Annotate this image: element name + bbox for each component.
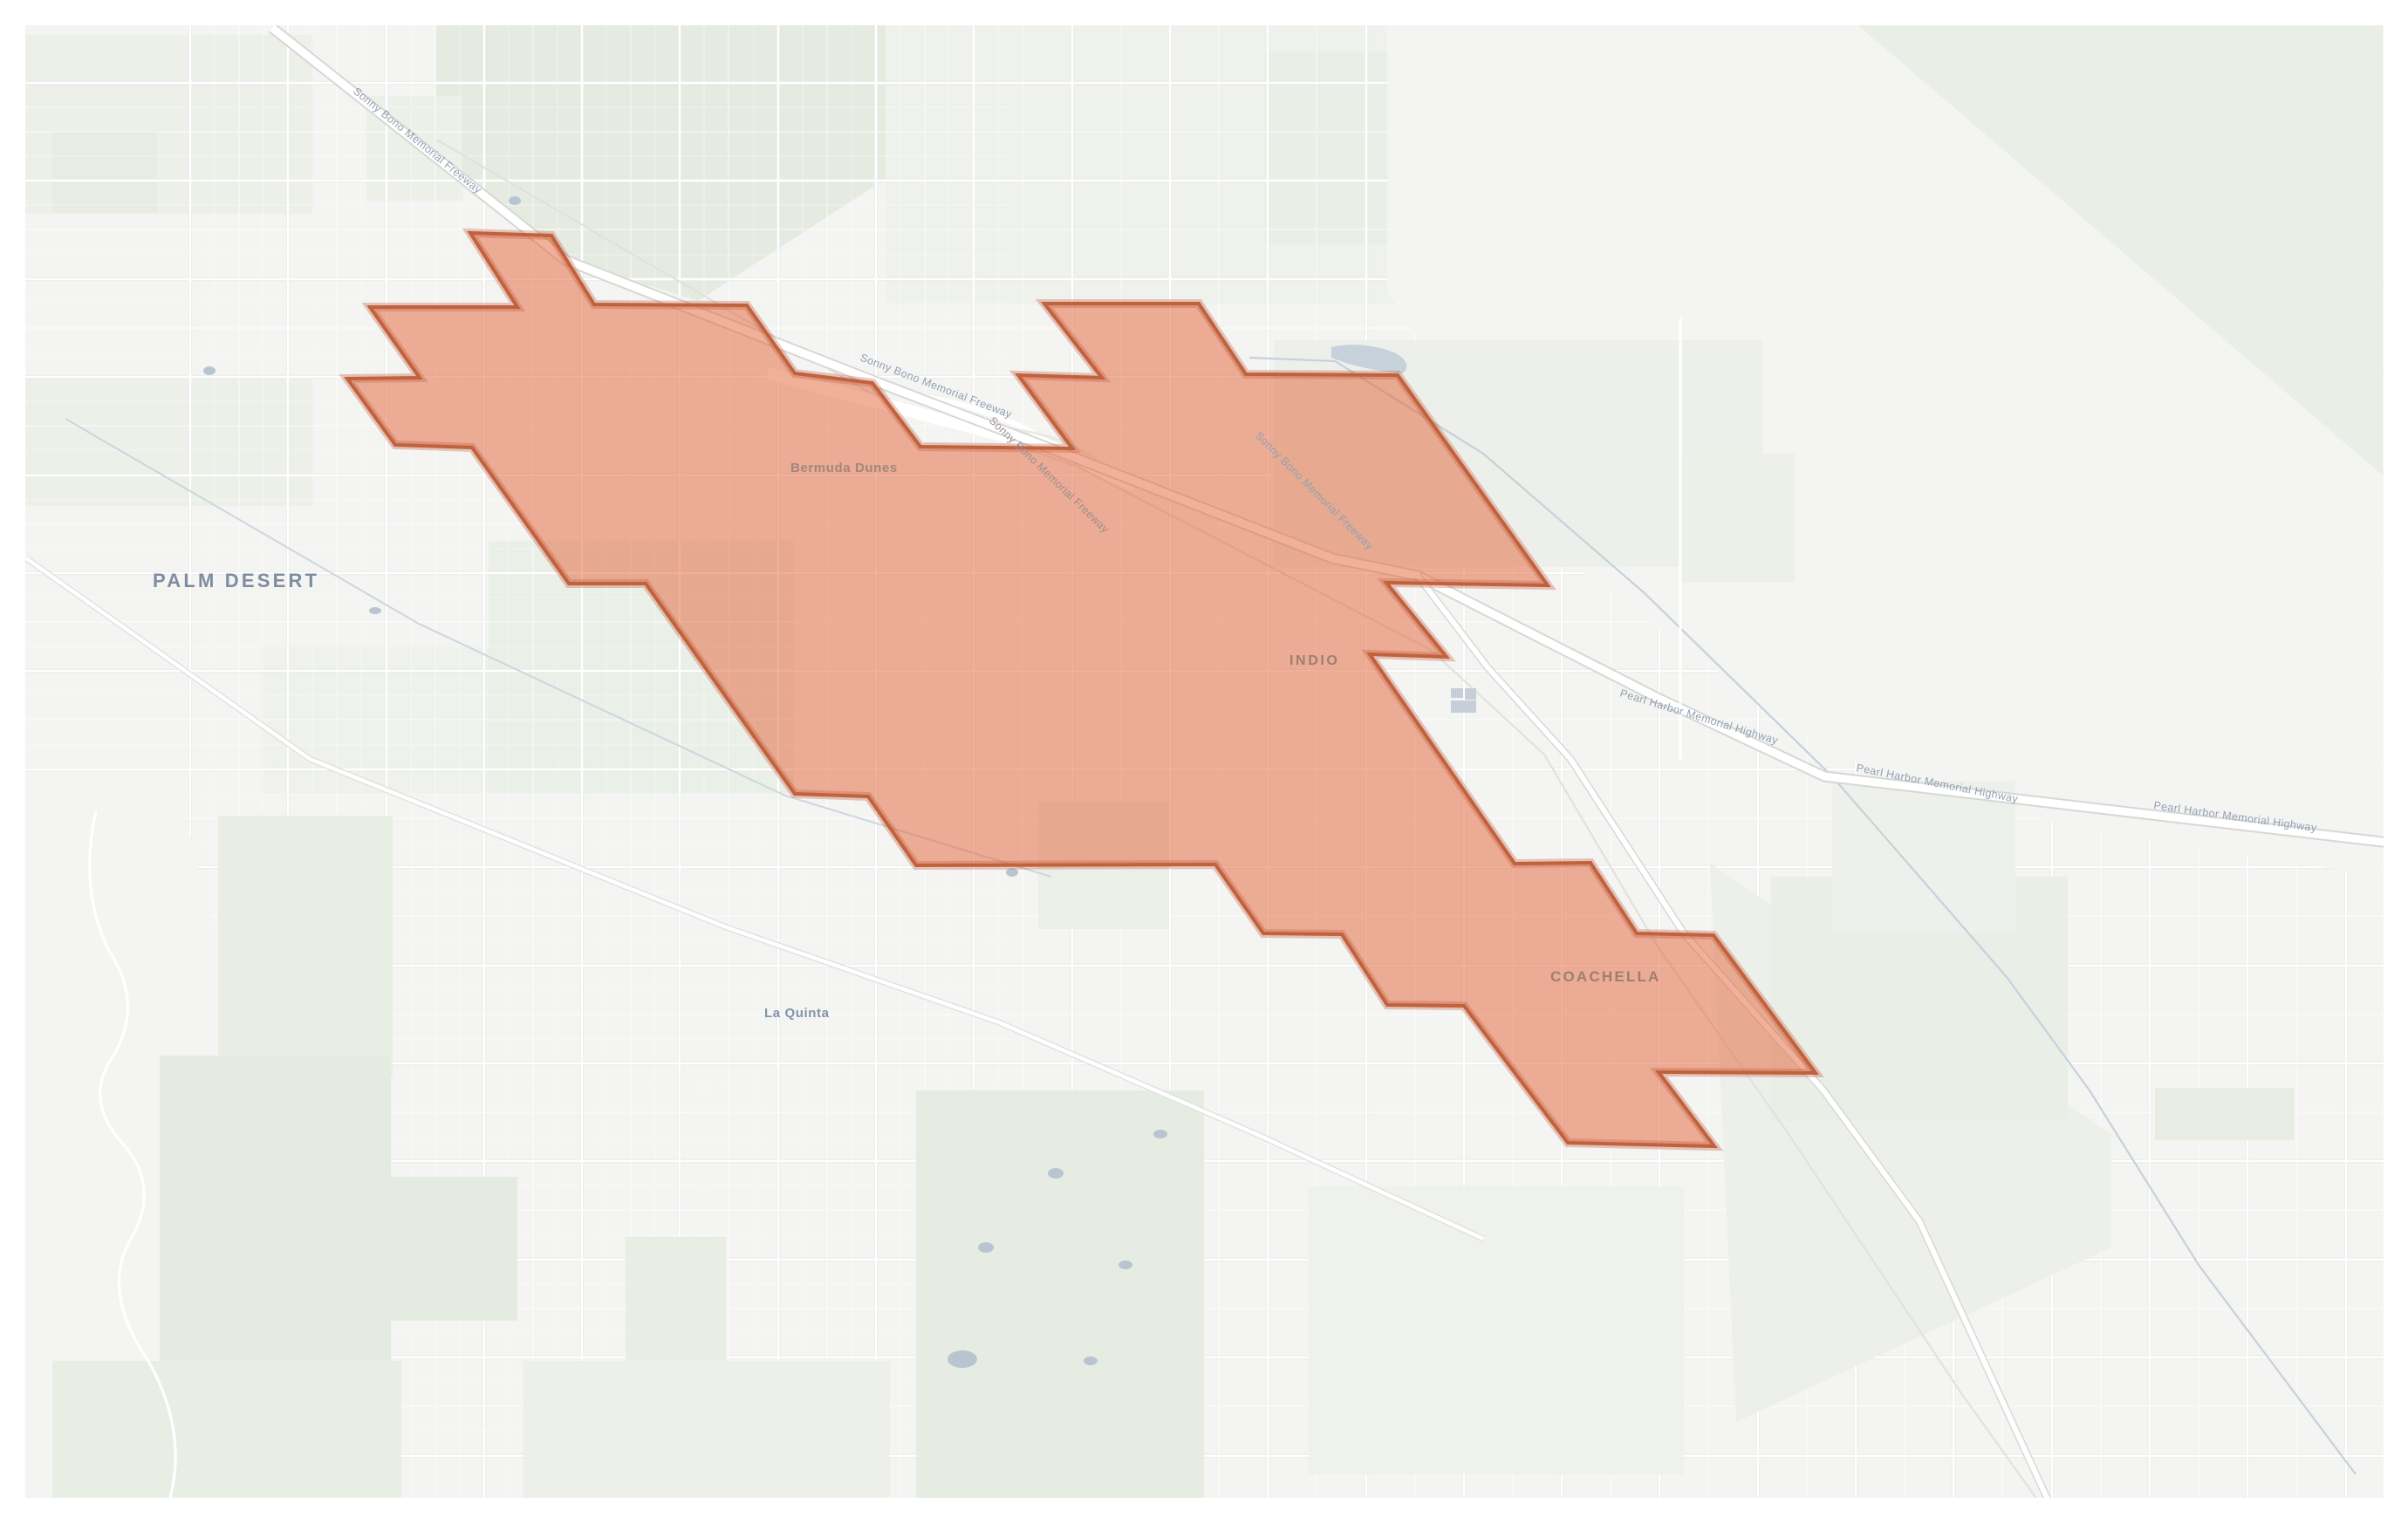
svg-text:La Quinta: La Quinta	[764, 1006, 830, 1021]
svg-text:COACHELLA: COACHELLA	[1550, 968, 1661, 985]
svg-text:Bermuda Dunes: Bermuda Dunes	[790, 461, 898, 475]
svg-text:PALM DESERT: PALM DESERT	[153, 570, 319, 591]
svg-text:INDIO: INDIO	[1290, 653, 1339, 668]
